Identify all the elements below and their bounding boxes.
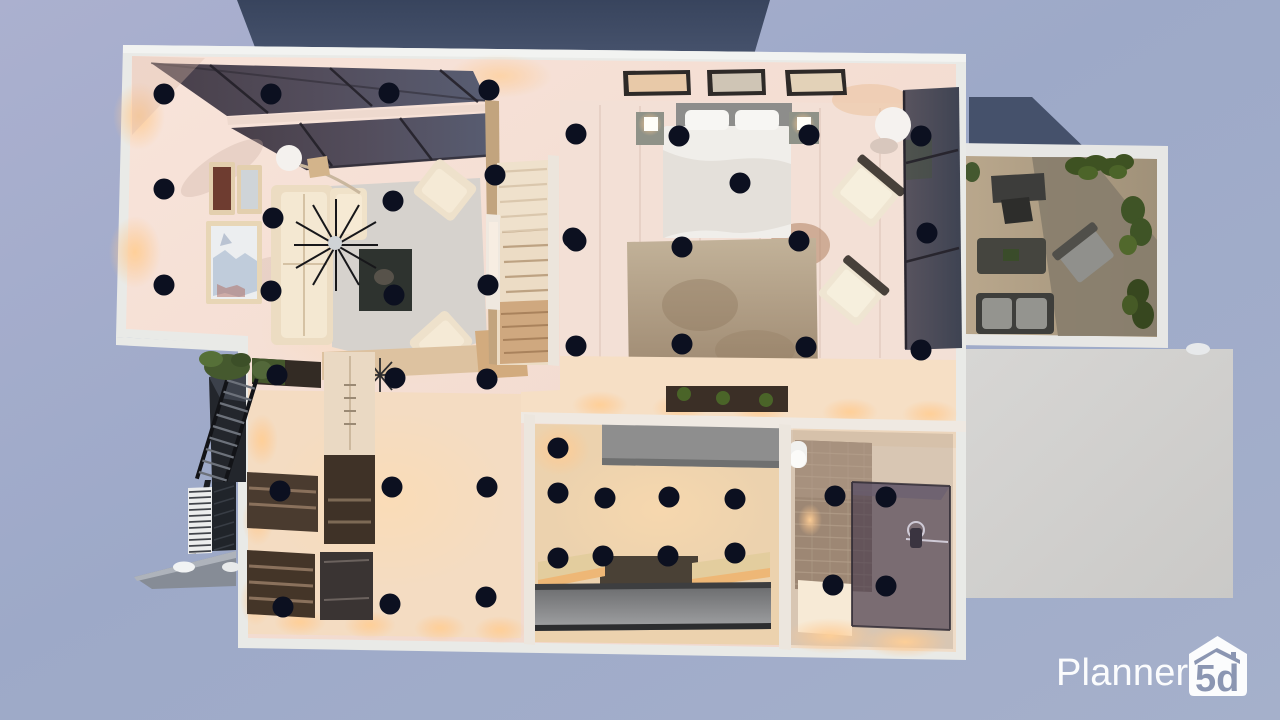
svg-text:Planner: Planner <box>1056 652 1189 694</box>
svg-text:5d: 5d <box>1195 658 1239 700</box>
